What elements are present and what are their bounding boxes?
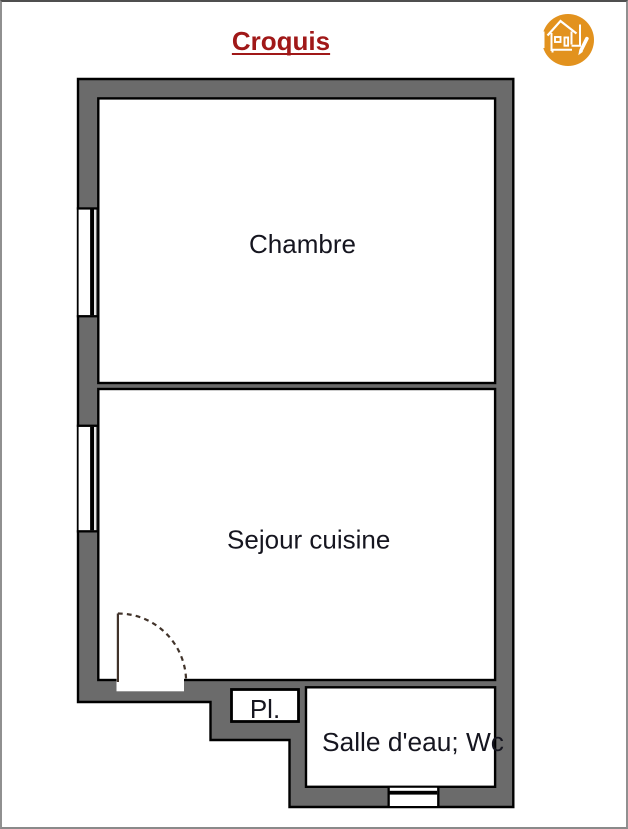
svg-text:Salle d'eau; Wc: Salle d'eau; Wc bbox=[322, 727, 504, 757]
svg-text:Pl.: Pl. bbox=[250, 694, 280, 724]
svg-text:Chambre: Chambre bbox=[249, 229, 356, 259]
svg-text:Sejour cuisine: Sejour cuisine bbox=[227, 525, 390, 555]
